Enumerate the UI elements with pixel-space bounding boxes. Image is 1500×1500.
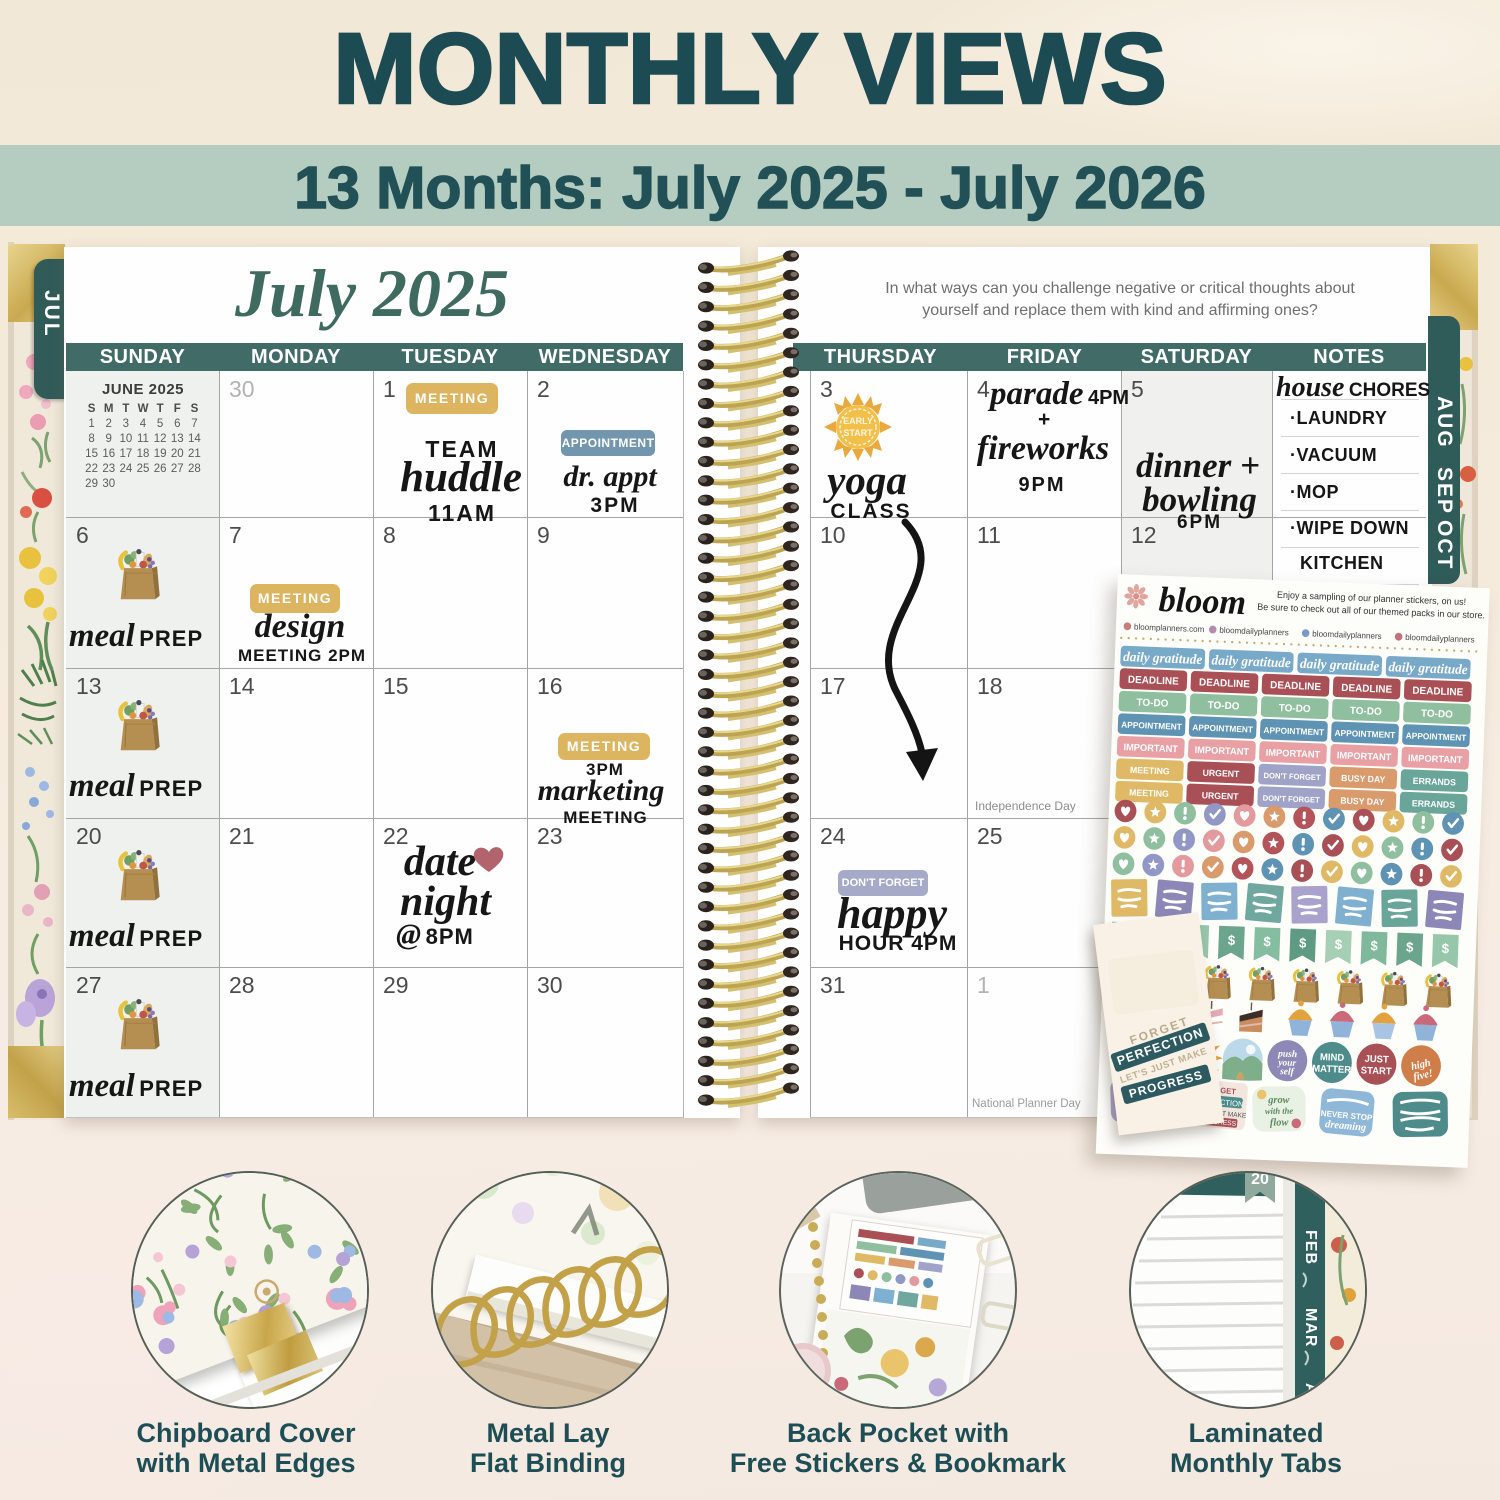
svg-text:$: $: [1370, 938, 1378, 954]
svg-text:TO-DO: TO-DO: [1136, 697, 1168, 709]
svg-text:DEADLINE: DEADLINE: [1412, 685, 1463, 698]
svg-text:URGENT: URGENT: [1202, 790, 1240, 802]
svg-text:TO-DO: TO-DO: [1279, 703, 1311, 715]
svg-text:BUSY DAY: BUSY DAY: [1341, 773, 1386, 785]
svg-text:DEADLINE: DEADLINE: [1270, 680, 1321, 693]
svg-text:URGENT: URGENT: [1202, 768, 1240, 780]
svg-text:IMPORTANT: IMPORTANT: [1337, 750, 1392, 763]
svg-text:flow: flow: [1270, 1117, 1290, 1128]
svg-text:$: $: [1441, 941, 1449, 957]
svg-text:TO-DO: TO-DO: [1350, 706, 1382, 718]
svg-text:IMPORTANT: IMPORTANT: [1123, 742, 1178, 755]
svg-text:DEADLINE: DEADLINE: [1128, 675, 1179, 688]
svg-text:$: $: [1227, 933, 1235, 949]
svg-text:MIND: MIND: [1320, 1052, 1345, 1064]
svg-text:with the: with the: [1265, 1105, 1293, 1116]
svg-text:IMPORTANT: IMPORTANT: [1408, 753, 1463, 766]
svg-text:IMPORTANT: IMPORTANT: [1265, 747, 1320, 760]
svg-text:MATTER: MATTER: [1312, 1063, 1351, 1076]
svg-text:$: $: [1299, 935, 1307, 951]
svg-text:DEADLINE: DEADLINE: [1199, 677, 1250, 690]
svg-text:daily gratitude: daily gratitude: [1300, 656, 1380, 674]
svg-text:$: $: [1334, 937, 1342, 953]
svg-text:$: $: [1263, 934, 1271, 950]
svg-text:IMPORTANT: IMPORTANT: [1194, 745, 1249, 758]
svg-text:EARLY: EARLY: [843, 416, 873, 426]
svg-text:grow: grow: [1267, 1095, 1290, 1107]
svg-text:TO-DO: TO-DO: [1207, 700, 1239, 712]
svg-text:BUSY DAY: BUSY DAY: [1340, 795, 1385, 807]
svg-text:ERRANDS: ERRANDS: [1413, 776, 1457, 788]
svg-text:START: START: [1361, 1065, 1392, 1077]
svg-text:TO-DO: TO-DO: [1421, 708, 1453, 720]
svg-text:$: $: [1406, 939, 1414, 955]
svg-text:bloomplanners.com: bloomplanners.com: [1134, 622, 1205, 634]
svg-text:DEADLINE: DEADLINE: [1341, 683, 1392, 696]
svg-text:ERRANDS: ERRANDS: [1412, 798, 1456, 810]
svg-text:daily gratitude: daily gratitude: [1123, 649, 1203, 667]
svg-text:MEETING: MEETING: [1129, 787, 1169, 799]
svg-text:bloomdailyplanners: bloomdailyplanners: [1405, 633, 1475, 645]
svg-text:MEETING: MEETING: [1130, 765, 1170, 777]
svg-text:START: START: [843, 428, 873, 438]
svg-text:bloom: bloom: [1158, 579, 1247, 622]
svg-text:JUST: JUST: [1364, 1054, 1389, 1066]
svg-text:daily gratitude: daily gratitude: [1211, 652, 1291, 670]
svg-text:bloomdailyplanners: bloomdailyplanners: [1312, 629, 1382, 641]
svg-text:bloomdailyplanners: bloomdailyplanners: [1219, 626, 1289, 638]
svg-text:daily gratitude: daily gratitude: [1388, 659, 1468, 677]
svg-text:self: self: [1279, 1066, 1295, 1078]
